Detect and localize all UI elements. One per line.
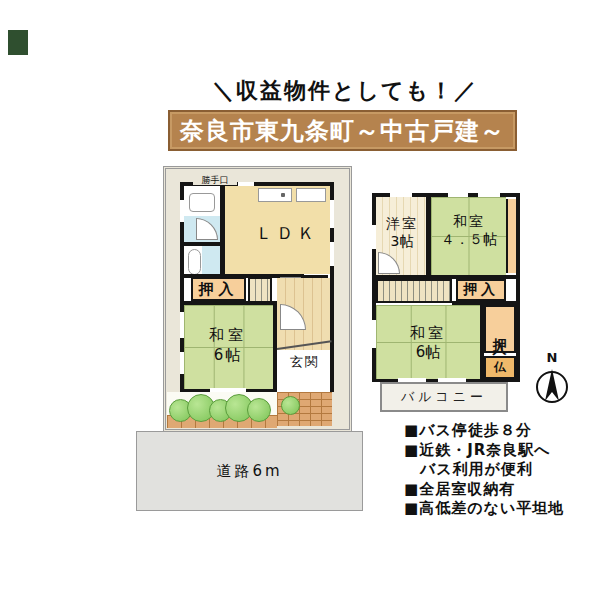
stairs-2f [376, 279, 452, 303]
window [210, 388, 246, 392]
washitsu45-size: ４．５帖 [433, 231, 505, 247]
feature-item: バス利用が便利 [404, 460, 600, 480]
washitsu-1f-name: 和室 [196, 327, 260, 345]
washitsu-1f-size: 6帖 [196, 347, 260, 365]
road-label: 道路6m [216, 462, 282, 481]
kitchen-stove [296, 188, 326, 202]
feature-item: ■高低差のない平坦地 [404, 499, 600, 519]
window [390, 193, 412, 197]
window [372, 320, 376, 348]
bath-right-wall [220, 186, 225, 278]
window [448, 193, 468, 197]
oshiire-2f-upper: 押入 [456, 279, 506, 301]
balcony-label: バルコニー [401, 388, 487, 406]
flyer-canvas: ＼収益物件としても！／ 奈良市東九条町～中古戸建～ 押入 WC [0, 0, 600, 600]
corner-mark [8, 30, 28, 55]
bathtub [188, 249, 201, 275]
window [180, 200, 184, 222]
closet-strip [506, 199, 516, 273]
window [180, 312, 184, 338]
washitsu6-2f-size: 6帖 [398, 344, 458, 361]
banner-text: 奈良市東九条町～中古戸建～ [180, 115, 505, 147]
katteguchi-label: 勝手口 [193, 175, 237, 185]
butsudan-label: 仏 [494, 359, 506, 376]
stairs-1f [248, 277, 272, 304]
oshiire-2f-side-label: 押入 [491, 327, 509, 331]
window [372, 225, 376, 249]
feature-item: ■バス停徒歩８分 [404, 421, 600, 441]
feature-list: ■バス停徒歩８分 ■近鉄・JR奈良駅へ バス利用が便利 ■全居室収納有 ■高低差… [404, 421, 600, 521]
compass-north-label: N [544, 351, 560, 366]
washitsu-right-wall [273, 301, 277, 392]
kitchen-sink [258, 188, 292, 202]
bathroom-floor [202, 246, 220, 277]
feature-item: ■近鉄・JR奈良駅へ [404, 441, 600, 461]
oshiire-2f-side: 押入 [484, 305, 516, 353]
window [180, 352, 184, 374]
slogan-text: ＼収益物件としても！／ [198, 78, 492, 106]
window [478, 193, 500, 197]
oshiire-1f-label: 押入 [199, 280, 239, 299]
window [238, 182, 254, 186]
window [438, 378, 466, 382]
window [398, 378, 426, 382]
yoshitsu-name: 洋室 [379, 215, 425, 231]
oshiire-1f: 押入 [191, 277, 246, 301]
bush [281, 396, 300, 415]
washer [189, 193, 215, 212]
feature-item: ■全居室収納有 [404, 480, 600, 500]
butsudan-space: 仏 [484, 356, 516, 379]
yoshitsu-size: 3帖 [379, 233, 425, 249]
balcony: バルコニー [380, 382, 508, 412]
washitsu45-name: 和室 [443, 213, 495, 229]
bush [247, 398, 271, 422]
window [330, 242, 334, 266]
washitsu6-2f-name: 和室 [398, 325, 458, 342]
title-banner: 奈良市東九条町～中古戸建～ [168, 110, 517, 151]
oshiire-2f-upper-label: 押入 [463, 281, 499, 299]
road-area: 道路6m [136, 431, 363, 511]
genkan-label: 玄関 [283, 355, 327, 371]
ldk-label: ＬＤＫ [237, 224, 337, 244]
